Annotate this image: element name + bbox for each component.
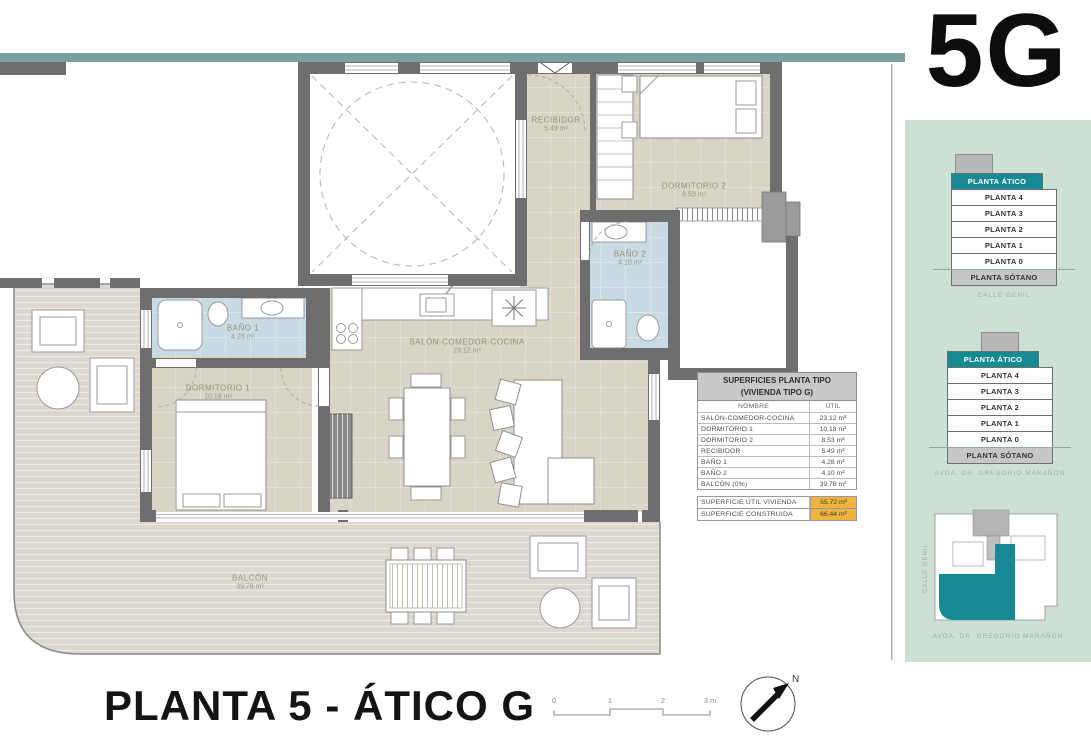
floor-plan-drawing <box>0 62 905 662</box>
table-row: SALÓN-COMEDOR-COCINA 23.12 m² <box>698 412 856 423</box>
stack-floor-sotano: PLANTA SÓTANO <box>951 269 1057 286</box>
areas-table: SUPERFICIES PLANTA TIPO (VIVIENDA TIPO G… <box>697 372 857 521</box>
stack-floor: PLANTA 0 <box>951 253 1057 270</box>
areas-table-body: NOMBRE ÚTIL SALÓN-COMEDOR-COCINA 23.12 m… <box>697 401 857 490</box>
stack-floor: PLANTA 4 <box>947 367 1053 384</box>
svg-text:0: 0 <box>552 696 556 705</box>
building-core <box>973 510 1009 536</box>
north-arrow-icon: N <box>728 666 808 746</box>
fridge-snowflake-icon <box>502 296 526 320</box>
room-label-dormitorio-2: DORMITORIO 2 8.53 m² <box>662 182 727 199</box>
street-label-bottom: AVDA. DR. GREGORIO MARAÑÓN <box>933 631 1064 640</box>
street-label-left: CALLE GENIL <box>923 543 929 593</box>
summary-row-util: SUPERFICIE ÚTIL VIVIENDA 55.72 m² <box>697 496 857 509</box>
stack-caption: CALLE GENIL <box>919 292 1089 299</box>
floor-stack-calle: PLANTA ÁTICO PLANTA 4 PLANTA 3 PLANTA 2 … <box>951 154 1057 299</box>
table-row: BALCÓN (0%) 39.78 m² <box>698 478 856 489</box>
table-row: BAÑO 1 4.28 m² <box>698 456 856 467</box>
plan-sheet: 5G <box>0 0 1091 750</box>
room-label-dormitorio-1: DORMITORIO 1 10.18 m² <box>186 384 251 401</box>
location-side-panel: PLANTA ÁTICO PLANTA 4 PLANTA 3 PLANTA 2 … <box>905 120 1091 662</box>
stack-floor: PLANTA 3 <box>947 383 1053 400</box>
stack-floor: PLANTA 1 <box>947 415 1053 432</box>
stack-floor: PLANTA 2 <box>951 221 1057 238</box>
room-label-bano-2: BAÑO 2 4.10 m² <box>614 250 646 267</box>
table-row: RECIBIDOR 5.49 m² <box>698 445 856 456</box>
ground-line <box>933 269 1075 270</box>
areas-table-title: SUPERFICIES PLANTA TIPO (VIVIENDA TIPO G… <box>697 372 857 401</box>
stack-floor-atico: PLANTA ÁTICO <box>947 351 1039 368</box>
table-row: DORMITORIO 1 10.18 m² <box>698 423 856 434</box>
scale-bar: 0 1 2 3 m <box>546 694 726 722</box>
table-row: BAÑO 2 4.10 m² <box>698 467 856 478</box>
stack-floor: PLANTA 3 <box>951 205 1057 222</box>
stack-floor-sotano: PLANTA SÓTANO <box>947 447 1053 464</box>
stack-floor: PLANTA 2 <box>947 399 1053 416</box>
svg-text:3 m: 3 m <box>704 696 717 705</box>
svg-text:2: 2 <box>661 696 665 705</box>
sheet-title: PLANTA 5 - ÁTICO G <box>104 682 535 730</box>
site-plan: CALLE GENIL AVDA. DR. GREGORIO MARAÑÓN <box>905 508 1091 662</box>
stack-floor-atico: PLANTA ÁTICO <box>951 173 1043 190</box>
summary-row-construida: SUPERFICIE CONSTRUIDA 66.44 m² <box>697 508 857 521</box>
floor-plan-area: RECIBIDOR 5.49 m² DORMITORIO 2 8.53 m² B… <box>0 62 905 662</box>
sheet-edge-line <box>891 64 893 660</box>
areas-table-summary: SUPERFICIE ÚTIL VIVIENDA 55.72 m² SUPERF… <box>697 496 857 521</box>
table-header-row: NOMBRE ÚTIL <box>698 401 856 412</box>
stack-caption: AVDA. DR. GREGORIO MARAÑÓN <box>915 470 1085 477</box>
stack-floor: PLANTA 0 <box>947 431 1053 448</box>
svg-text:N: N <box>792 674 799 685</box>
top-accent-bar <box>0 53 905 62</box>
ground-line <box>929 447 1071 448</box>
room-label-recibidor: RECIBIDOR 5.49 m² <box>532 116 581 133</box>
stack-floor: PLANTA 1 <box>951 237 1057 254</box>
room-label-bano-1: BAÑO 1 4.28 m² <box>227 324 259 341</box>
svg-text:1: 1 <box>608 696 612 705</box>
stack-roof-box <box>955 154 993 174</box>
title-band: PLANTA 5 - ÁTICO G 0 1 2 3 m N <box>0 662 1091 750</box>
unit-code: 5G <box>903 0 1091 116</box>
stack-roof-box <box>981 332 1019 352</box>
table-row: DORMITORIO 2 8.53 m² <box>698 434 856 445</box>
stack-floor: PLANTA 4 <box>951 189 1057 206</box>
floor-stack-avda: PLANTA ÁTICO PLANTA 4 PLANTA 3 PLANTA 2 … <box>947 332 1053 477</box>
patio-lightwell <box>310 74 515 274</box>
room-label-balcon: BALCÓN 39.78 m² <box>232 574 268 591</box>
room-label-salon: SALÓN-COMEDOR-COCINA 23.12 m² <box>409 338 524 355</box>
